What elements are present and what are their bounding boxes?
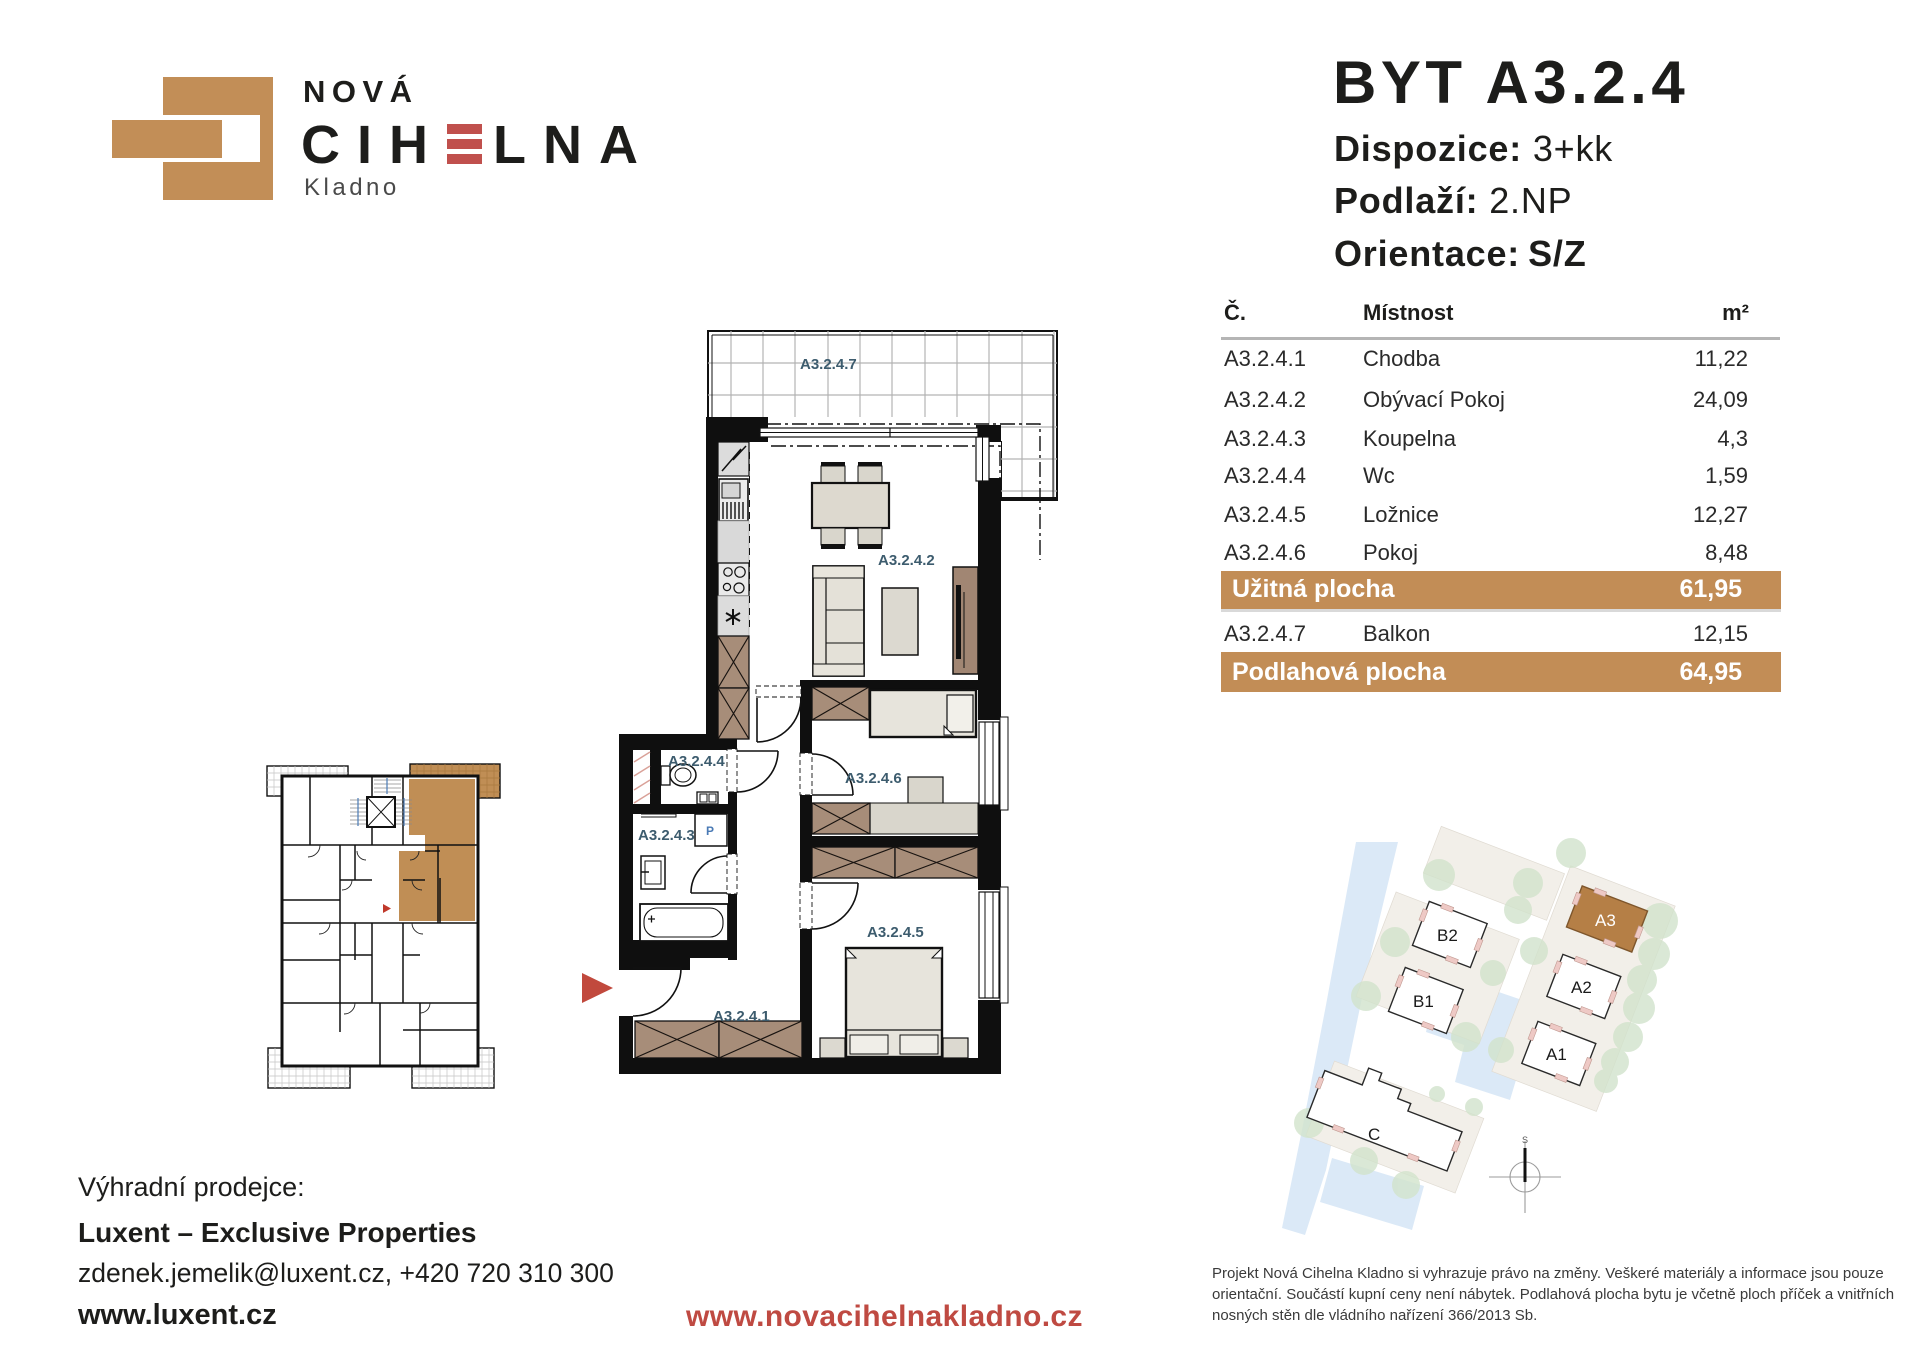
svg-text:A3.2.4.3: A3.2.4.3 [638,827,695,844]
svg-text:A3.2.4.4: A3.2.4.4 [668,753,725,770]
svg-text:C: C [1368,1125,1380,1144]
svg-text:A3.2.4.1: A3.2.4.1 [713,1008,770,1025]
svg-text:A3.2.4.7: A3.2.4.7 [800,356,857,373]
svg-text:A3.2.4.6: A3.2.4.6 [845,770,902,787]
svg-text:P: P [706,824,714,838]
svg-text:A3: A3 [1595,911,1616,930]
svg-text:S: S [1522,1135,1528,1145]
svg-text:B2: B2 [1437,926,1458,945]
svg-text:A1: A1 [1546,1045,1567,1064]
svg-text:A2: A2 [1571,978,1592,997]
svg-text:A3.2.4.2: A3.2.4.2 [878,552,935,569]
svg-text:A3.2.4.5: A3.2.4.5 [867,924,924,941]
svg-text:B1: B1 [1413,992,1434,1011]
